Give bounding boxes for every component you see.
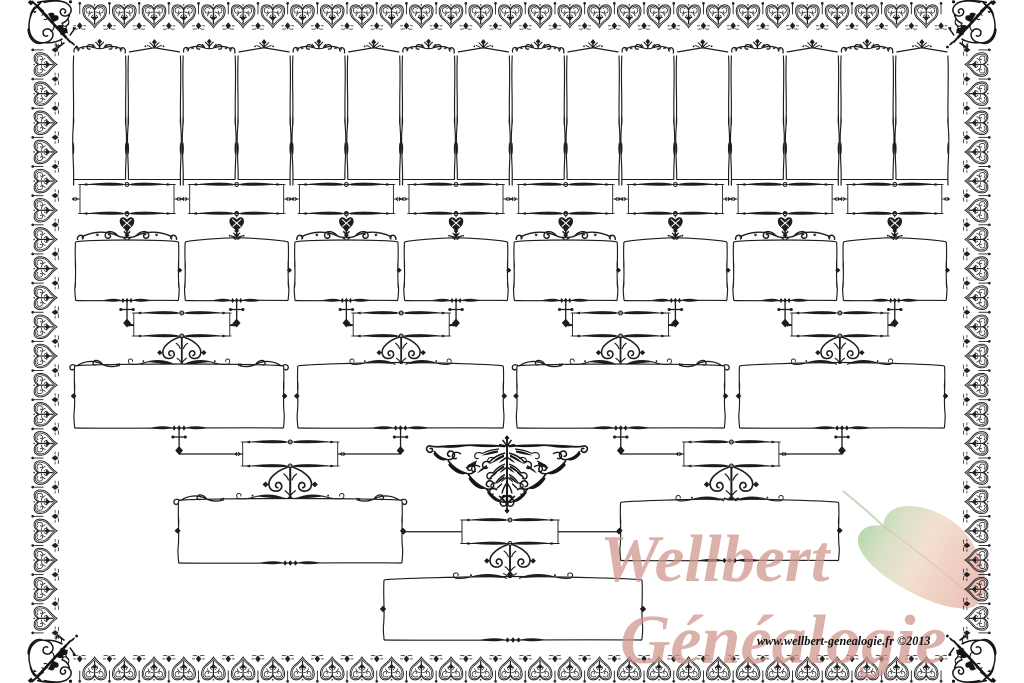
svg-text:www.wellbert-genealogie.fr ©20: www.wellbert-genealogie.fr ©2013 — [757, 634, 931, 648]
svg-text:Wellbert: Wellbert — [600, 522, 832, 596]
